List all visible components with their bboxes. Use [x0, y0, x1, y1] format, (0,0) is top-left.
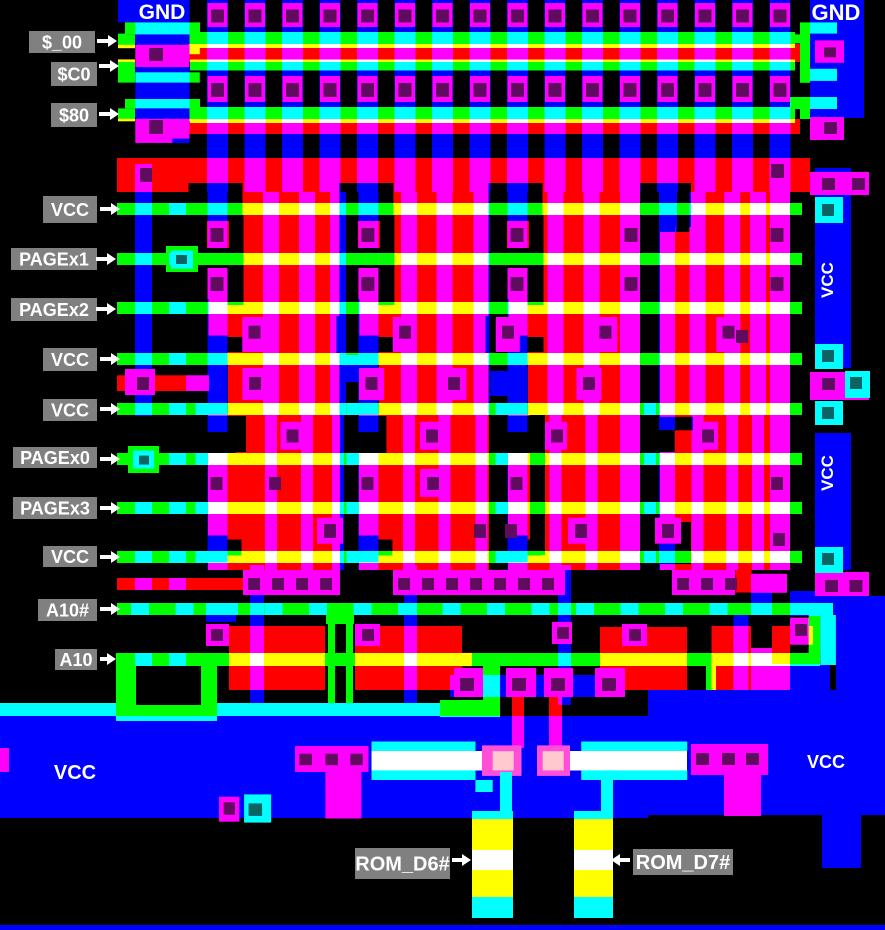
svg-text:PAGEx2: PAGEx2 — [19, 300, 89, 320]
svg-text:VCC: VCC — [51, 350, 89, 370]
svg-text:GND: GND — [139, 1, 186, 24]
svg-text:$_00: $_00 — [42, 32, 82, 52]
svg-text:A10: A10 — [59, 650, 92, 670]
svg-text:ROM_D7#: ROM_D7# — [636, 852, 730, 874]
svg-text:GND: GND — [812, 0, 861, 25]
svg-text:PAGEx3: PAGEx3 — [20, 498, 90, 518]
svg-text:$C0: $C0 — [57, 64, 90, 84]
svg-text:$80: $80 — [59, 105, 89, 125]
svg-text:VCC: VCC — [51, 547, 89, 567]
svg-text:A10#: A10# — [46, 600, 89, 620]
svg-text:VCC: VCC — [51, 200, 89, 220]
svg-text:VCC: VCC — [51, 400, 89, 420]
svg-text:PAGEx0: PAGEx0 — [20, 448, 90, 468]
svg-text:VCC: VCC — [818, 455, 837, 491]
svg-text:ROM_D6#: ROM_D6# — [355, 854, 449, 876]
svg-text:VCC: VCC — [818, 262, 837, 298]
svg-text:PAGEx1: PAGEx1 — [19, 249, 89, 269]
svg-text:VCC: VCC — [807, 752, 845, 772]
svg-text:VCC: VCC — [54, 762, 96, 784]
